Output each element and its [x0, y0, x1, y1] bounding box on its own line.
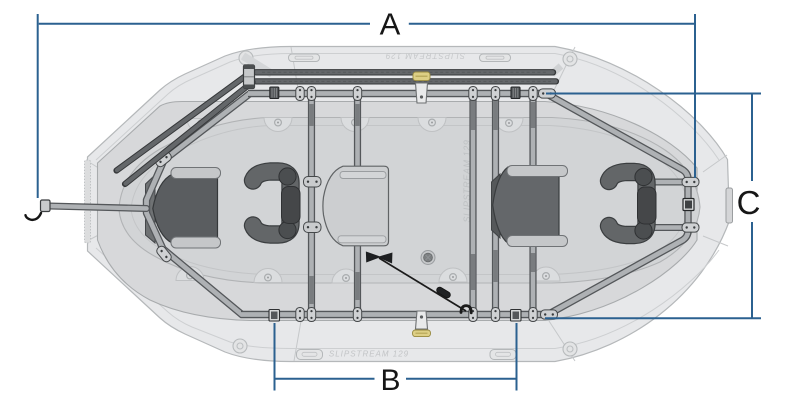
svg-text:C: C [737, 184, 761, 221]
svg-text:B: B [380, 364, 400, 397]
svg-text:SLIPSTREAM 129: SLIPSTREAM 129 [385, 51, 465, 60]
svg-text:SLIPSTREAM 129: SLIPSTREAM 129 [329, 350, 409, 359]
svg-text:A: A [380, 7, 401, 42]
